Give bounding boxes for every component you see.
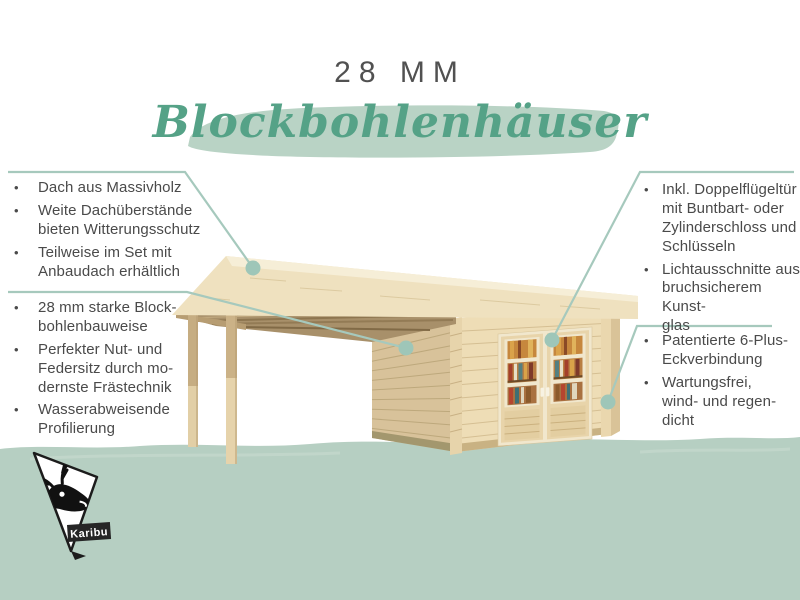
callout-dot-corner — [601, 395, 616, 410]
feature-text: Patentierte 6-Plus- Eckverbindung — [662, 332, 788, 370]
bullet-icon: • — [14, 202, 38, 240]
feature-text: Wasserabweisende Profilierung — [38, 401, 170, 439]
corner-trim-right — [601, 310, 611, 437]
feature-text: Inkl. Doppelflügeltür mit Buntbart- oder… — [662, 181, 797, 257]
double-door — [498, 327, 592, 446]
corner-trim-left — [450, 317, 462, 455]
bullet-icon: • — [14, 299, 38, 337]
door-handle — [541, 388, 545, 397]
feature-text: Teilweise im Set mit Anbaudach erhältlic… — [38, 244, 180, 282]
infographic-page: Karibu 28 MM Blockbohlenhäuser • Dach au… — [0, 0, 800, 600]
feature-item: • Weite Dachüberstände bieten Witterungs… — [14, 202, 209, 240]
feature-item: • Perfekter Nut- und Federsitz durch mo-… — [14, 341, 209, 398]
door-handle — [546, 387, 550, 396]
bullet-icon: • — [644, 181, 662, 257]
feature-item: • Inkl. Doppelflügeltür mit Buntbart- od… — [644, 181, 800, 257]
feature-item: • Lichtausschnitte aus bruchsicherem Kun… — [644, 261, 800, 337]
ground — [0, 437, 800, 600]
feature-item: • Wasserabweisende Profilierung — [14, 401, 209, 439]
feature-block-corner: • Patentierte 6-Plus- Eckverbindung • Wa… — [644, 332, 800, 430]
feature-text: 28 mm starke Block- bohlenbauweise — [38, 299, 177, 337]
feature-text: Dach aus Massivholz — [38, 179, 182, 198]
feature-item: • Teilweise im Set mit Anbaudach erhältl… — [14, 244, 209, 282]
feature-item: • Patentierte 6-Plus- Eckverbindung — [644, 332, 800, 370]
page-heading: Blockbohlenhäuser — [0, 97, 800, 148]
bullet-icon: • — [644, 332, 662, 370]
feature-text: Wartungsfrei, wind- und regen- dicht — [662, 374, 776, 431]
bullet-icon: • — [644, 374, 662, 431]
bullet-icon: • — [14, 341, 38, 398]
feature-item: • Wartungsfrei, wind- und regen- dicht — [644, 374, 800, 431]
bullet-icon: • — [14, 401, 38, 439]
callout-dot-roof — [246, 261, 261, 276]
callout-dot-wall — [399, 341, 414, 356]
feature-item: • Dach aus Massivholz — [14, 179, 209, 198]
feature-block-walls: • 28 mm starke Block- bohlenbauweise • P… — [14, 299, 209, 439]
feature-text: Perfekter Nut- und Federsitz durch mo- d… — [38, 341, 173, 398]
feature-text: Weite Dachüberstände bieten Witterungssc… — [38, 202, 200, 240]
logo-label: Karibu — [67, 522, 111, 542]
shed-illustration — [172, 256, 638, 464]
bullet-icon: • — [14, 179, 38, 198]
bullet-icon: • — [14, 244, 38, 282]
feature-block-door: • Inkl. Doppelflügeltür mit Buntbart- od… — [644, 181, 800, 336]
callout-dot-door — [545, 333, 560, 348]
page-title: 28 MM — [0, 56, 800, 90]
feature-block-roof: • Dach aus Massivholz • Weite Dachüberst… — [14, 179, 209, 281]
bullet-icon: • — [644, 261, 662, 337]
feature-item: • 28 mm starke Block- bohlenbauweise — [14, 299, 209, 337]
feature-text: Lichtausschnitte aus bruchsicherem Kunst… — [662, 261, 800, 337]
